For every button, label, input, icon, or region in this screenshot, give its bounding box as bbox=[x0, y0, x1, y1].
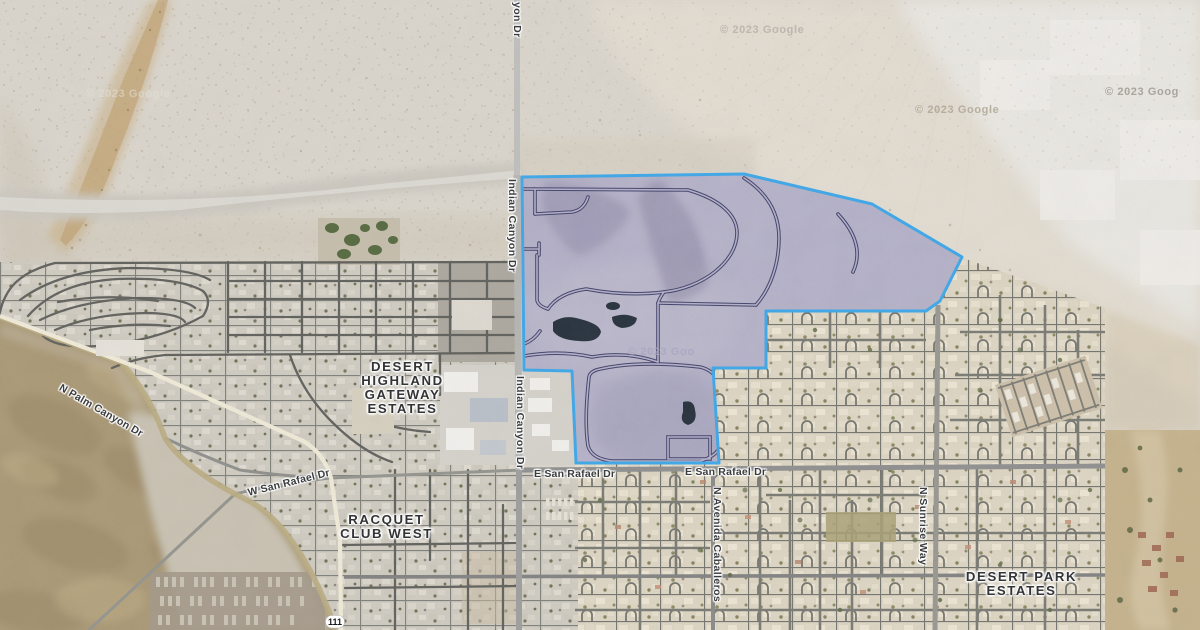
svg-text:111: 111 bbox=[328, 617, 342, 627]
